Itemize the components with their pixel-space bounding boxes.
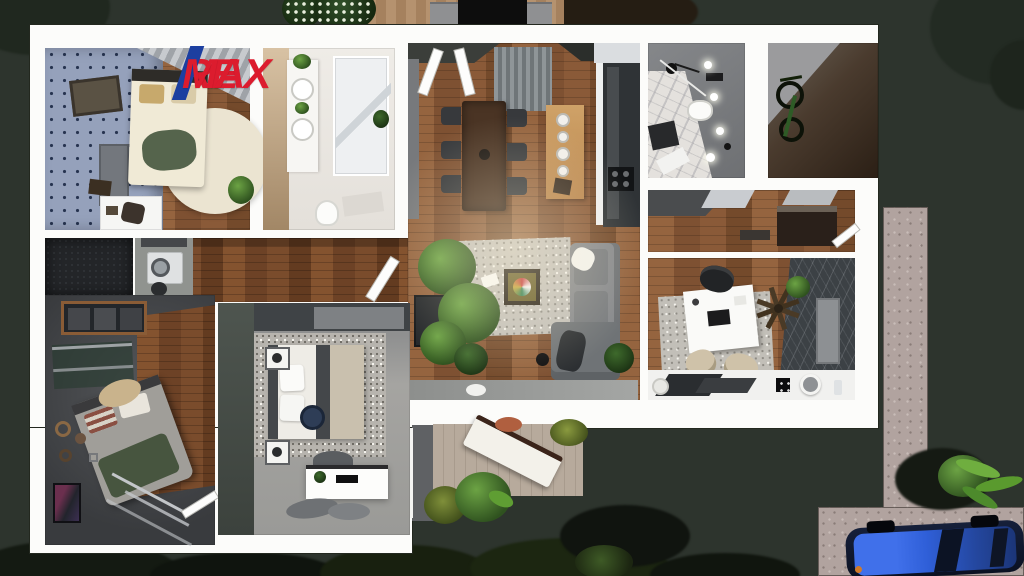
- ottoman: [495, 417, 522, 432]
- duvet-beige: [330, 345, 364, 439]
- vase: [834, 380, 842, 395]
- wall-art: [69, 75, 123, 117]
- vanity-counter: [287, 60, 318, 172]
- round-navy-pillow: [300, 405, 325, 430]
- ceiling-light: [716, 127, 724, 135]
- porch-bench: [430, 2, 458, 24]
- porch-bench: [527, 2, 552, 24]
- fan-hub: [774, 304, 783, 313]
- light-glow: [408, 43, 640, 400]
- bench: [88, 179, 112, 197]
- bedroom-left-wall: [218, 303, 254, 535]
- ramp-decor: [695, 378, 756, 393]
- laptop: [707, 309, 730, 326]
- round-mirror: [800, 374, 821, 395]
- wardrobe: [777, 206, 837, 246]
- nightstand: [267, 349, 288, 368]
- shelf-band: [648, 370, 855, 400]
- wardrobe: [314, 307, 404, 329]
- ceiling-light: [710, 93, 718, 101]
- vanity-plant: [295, 102, 309, 114]
- washer-door: [151, 258, 170, 277]
- storage-wall: [768, 43, 840, 125]
- door-leaf: [182, 491, 218, 517]
- desk-chair: [120, 201, 146, 225]
- desk-cup: [692, 298, 700, 306]
- towel-rail: [706, 73, 723, 81]
- desk-items: [106, 206, 118, 215]
- sink: [291, 118, 314, 141]
- tree-silhouette: [150, 552, 340, 576]
- wall-decor: [55, 421, 71, 437]
- room-living-kitchen: [408, 43, 640, 400]
- vanity-plant: [293, 54, 311, 69]
- washing-machine: [147, 252, 183, 284]
- walk-in-shower: [333, 56, 389, 176]
- dresser: [306, 465, 388, 499]
- office-desk: [683, 285, 759, 354]
- moss-foliage: [575, 545, 633, 576]
- shower-plant: [373, 110, 389, 128]
- media-player: [336, 475, 358, 483]
- floor-plan-render: RE MAX: [0, 0, 1024, 576]
- nightstand: [267, 442, 288, 463]
- room-office: [648, 258, 855, 400]
- vacuum-cleaner: [151, 282, 167, 296]
- drain-dot: [724, 143, 731, 150]
- bath-mat: [342, 191, 384, 216]
- shelf-cushion: [94, 308, 116, 330]
- skylight-reflection: [782, 190, 838, 205]
- dresser-plant: [314, 471, 326, 483]
- hall-table: [740, 230, 770, 240]
- toilet: [687, 100, 713, 121]
- sideboard: [816, 298, 840, 364]
- toilet: [315, 200, 339, 226]
- wall-decor: [89, 453, 98, 462]
- blanket: [141, 128, 198, 173]
- wall-shelf: [61, 301, 147, 335]
- table-lamp: [272, 447, 282, 457]
- wall-decor: [59, 449, 72, 462]
- ceiling-light: [706, 153, 715, 162]
- speaker-box: [776, 378, 790, 392]
- table-lamp: [272, 353, 282, 363]
- sink: [291, 78, 314, 101]
- glass-shelf: [52, 343, 132, 350]
- desk-paper: [734, 295, 747, 305]
- poster: [53, 483, 81, 523]
- pillow: [279, 364, 304, 391]
- shelf-cushion: [120, 308, 142, 330]
- room-bedroom-dark: [45, 295, 215, 545]
- skylight-reflection: [701, 190, 755, 208]
- room-bike-storage: [768, 43, 878, 178]
- glass-shelf: [53, 365, 133, 372]
- room-bathroom-ensuite: [263, 48, 395, 230]
- room-bedroom-gray: [218, 303, 410, 535]
- room-corridor: [135, 238, 408, 302]
- houseplant: [228, 176, 254, 204]
- shelf-cushion: [68, 308, 90, 330]
- door-leaf: [366, 257, 398, 301]
- room-closet: [45, 238, 133, 296]
- desk: [100, 196, 162, 230]
- remax-logo-max: MAX: [182, 52, 269, 96]
- houseplant: [786, 276, 810, 298]
- bicycle-wheel: [779, 117, 804, 142]
- room-hallway-upper: [648, 190, 855, 252]
- porch-structure: [366, 0, 564, 26]
- porch-doorway: [458, 0, 527, 25]
- utility-shelf: [141, 238, 187, 247]
- shrub: [550, 419, 588, 446]
- room-bathroom-marble: [648, 43, 745, 178]
- car: [844, 513, 1024, 576]
- bowl-decor: [652, 378, 669, 395]
- floor-mat: [328, 503, 370, 520]
- ceiling-light: [704, 61, 712, 69]
- corridor-shadow: [193, 238, 408, 246]
- pillow: [139, 84, 165, 104]
- wall-decor: [75, 433, 86, 444]
